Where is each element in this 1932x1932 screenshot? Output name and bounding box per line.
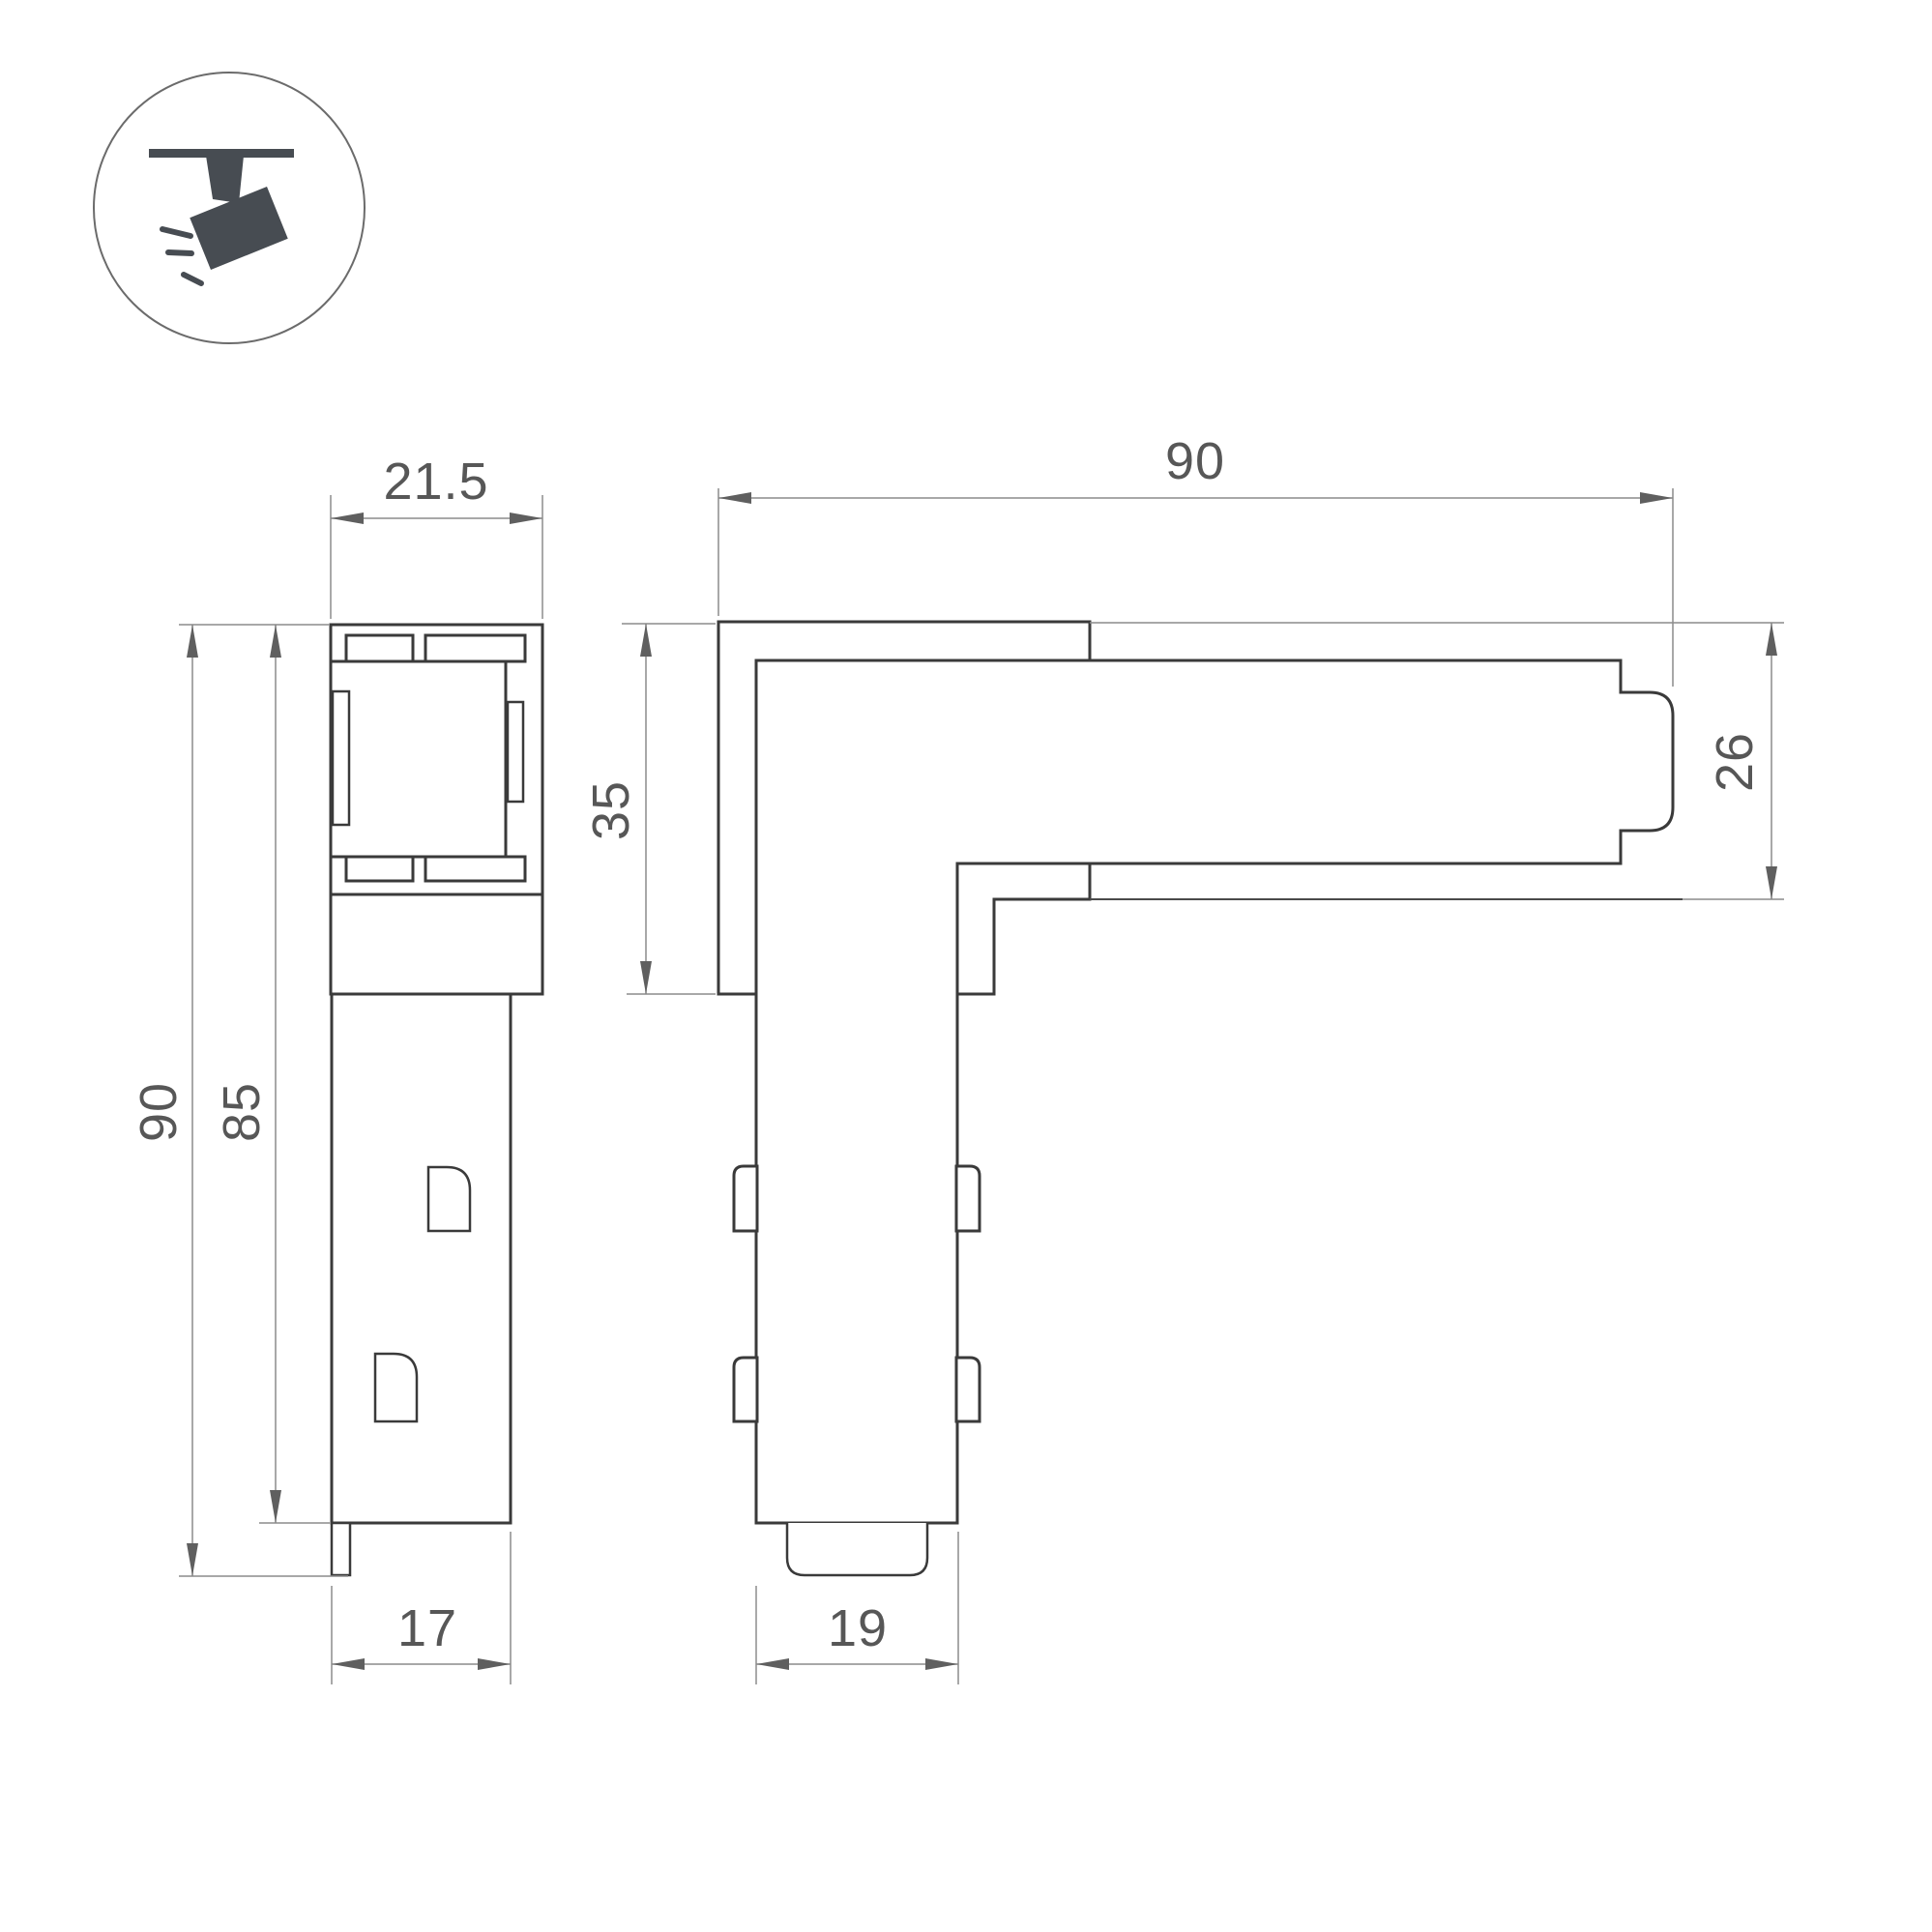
head-left-slot <box>333 691 349 825</box>
body-cutout-upper <box>428 1167 470 1231</box>
dim-label-total-width: 90 <box>1165 432 1225 490</box>
dim-90-top: 90 <box>718 432 1673 687</box>
back-piece-corner-steps <box>957 864 1090 994</box>
side-body <box>332 994 511 1523</box>
dim-label-total-height: 90 <box>130 1082 188 1142</box>
dim-label-right-height: 26 <box>1706 732 1764 792</box>
technical-drawing: 21.5 90 85 <box>0 0 1932 1932</box>
dim-26: 26 <box>1706 623 1777 899</box>
dim-17: 17 <box>332 1532 511 1684</box>
side-view: 21.5 90 85 <box>130 453 542 1684</box>
drawing-canvas: 21.5 90 85 <box>0 0 1932 1932</box>
body-cutout-lower <box>375 1354 417 1421</box>
track-spotlight-icon <box>94 73 365 343</box>
front-view: 90 35 26 <box>582 432 1784 1684</box>
side-collar <box>331 894 542 994</box>
front-bottom-tab <box>787 1523 927 1575</box>
dim-21-5: 21.5 <box>331 453 542 619</box>
tab-left-lower <box>734 1358 757 1421</box>
head-right-rail <box>508 702 523 802</box>
side-bottom-tab <box>332 1523 350 1575</box>
front-l-body <box>756 660 1673 1523</box>
dim-85: 85 <box>213 625 330 1523</box>
dim-label-left-height: 35 <box>582 780 640 840</box>
dim-35: 35 <box>582 624 716 994</box>
dim-label-body-height: 85 <box>213 1082 271 1142</box>
tab-right-lower <box>956 1358 980 1421</box>
tab-right-upper <box>956 1166 980 1231</box>
tab-left-upper <box>734 1166 757 1231</box>
dim-label-bottom-width-front: 19 <box>828 1599 888 1657</box>
dim-label-bottom-width: 17 <box>397 1599 457 1657</box>
dim-label-top-width: 21.5 <box>383 453 488 511</box>
